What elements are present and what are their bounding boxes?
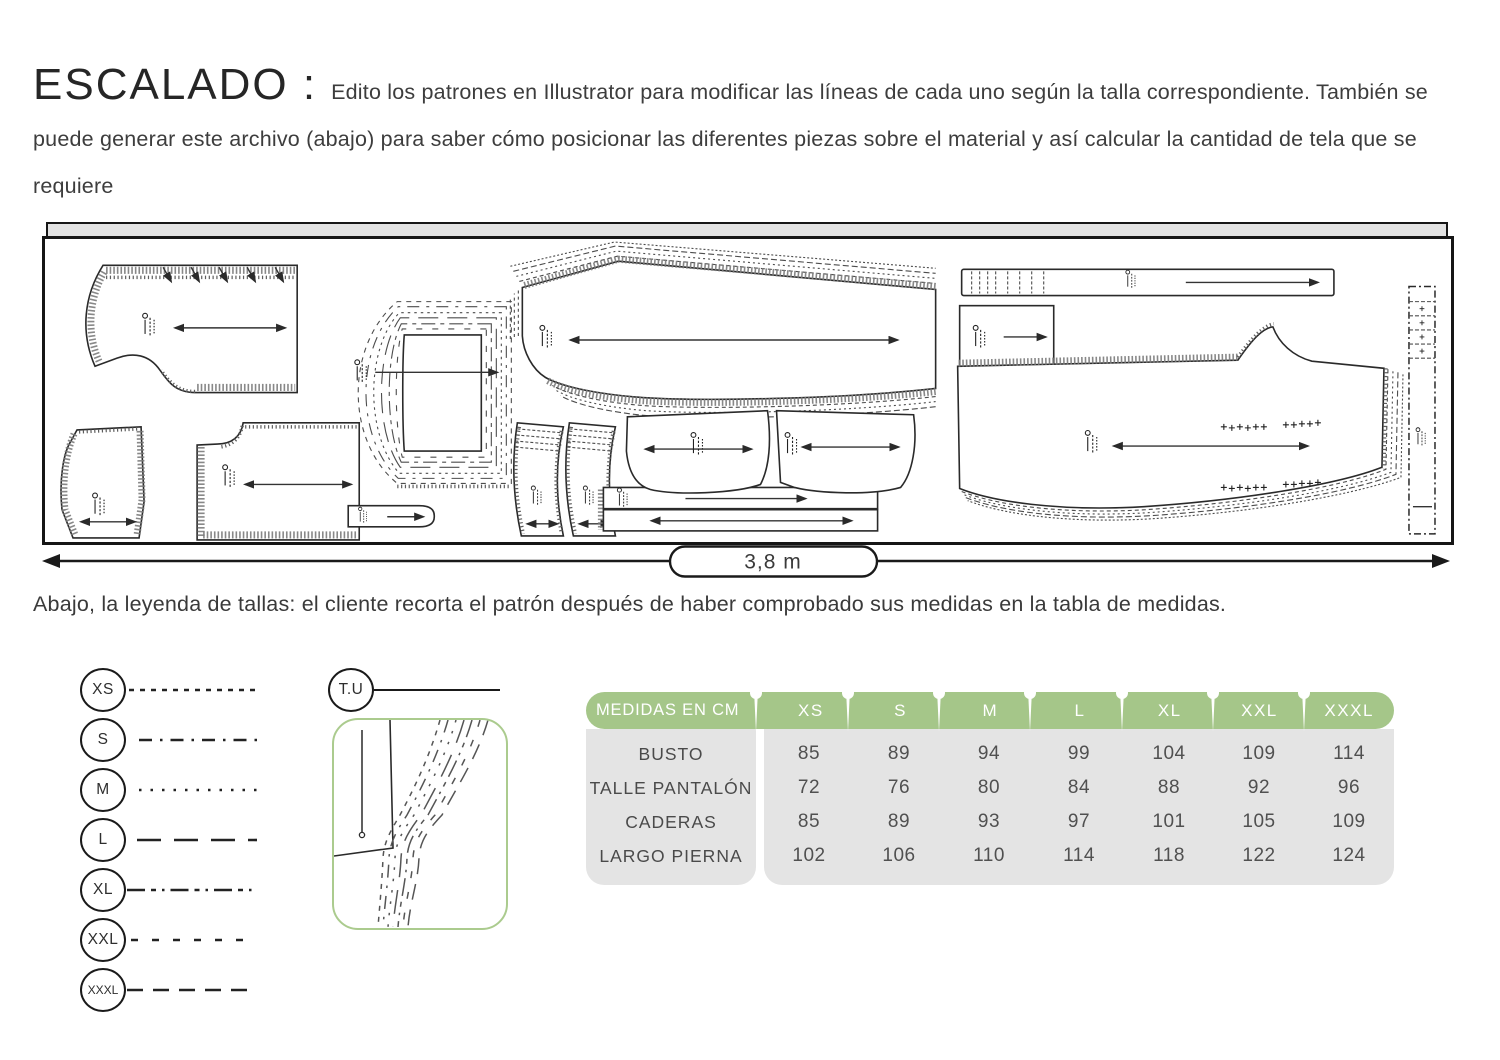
table-cell: 85 xyxy=(764,737,854,771)
dash-sample xyxy=(127,836,259,844)
measurements-table: MEDIDAS EN CM XS S M L XL XXL XXXL BUSTO… xyxy=(586,692,1394,885)
pin-icon xyxy=(1206,686,1220,734)
size-badge: M xyxy=(80,768,126,812)
dash-sample xyxy=(127,686,259,694)
pattern-piece-bodice-front xyxy=(86,265,297,392)
column-header-l: L xyxy=(1035,701,1125,721)
pattern-piece-pocket-1 xyxy=(626,411,769,493)
legend-row-xxl: XXL xyxy=(80,918,259,962)
arrow-left-icon xyxy=(42,554,60,568)
table-cell: 85 xyxy=(764,805,854,839)
table-cell: 101 xyxy=(1124,805,1214,839)
table-cell: 97 xyxy=(1034,805,1124,839)
table-cell: 118 xyxy=(1124,839,1214,873)
row-label: TALLE PANTALÓN xyxy=(586,771,756,805)
measure-value: 3,8 m xyxy=(744,551,802,574)
table-cell: 89 xyxy=(854,805,944,839)
table-cell: 80 xyxy=(944,771,1034,805)
column-header-xxl: XXL xyxy=(1215,701,1305,721)
page-title: ESCALADO : xyxy=(33,60,317,109)
pin-icon xyxy=(1115,686,1129,734)
column-header-m: M xyxy=(945,701,1035,721)
dash-sample xyxy=(127,986,259,994)
table-cell: 88 xyxy=(1124,771,1214,805)
pattern-piece-waist-strip-1 xyxy=(514,423,564,536)
size-badge: XL xyxy=(80,868,126,912)
pattern-piece-pocket-2 xyxy=(777,411,915,493)
table-cell: 106 xyxy=(854,839,944,873)
table-cell: 124 xyxy=(1304,839,1394,873)
grading-detail-drawing xyxy=(334,720,505,927)
arrow-right-icon xyxy=(1432,554,1450,568)
pin-icon xyxy=(1023,686,1037,734)
value-grid: 85 89 94 99 104 109 114 72 76 80 84 88 9… xyxy=(764,729,1394,885)
row-label: LARGO PIERNA xyxy=(586,839,756,873)
legend-row-xs: XS xyxy=(80,668,259,712)
pattern-piece-waistband xyxy=(962,269,1334,295)
pattern-piece-side-panel xyxy=(61,427,144,538)
legend-row-m: M xyxy=(80,768,259,812)
pin-icon xyxy=(841,686,855,734)
size-badge: S xyxy=(80,718,126,762)
table-cell: 105 xyxy=(1214,805,1304,839)
table-cell: 122 xyxy=(1214,839,1304,873)
table-cell: 84 xyxy=(1034,771,1124,805)
size-legend: XS S M L XL XXL xyxy=(80,668,259,1012)
table-cell: 93 xyxy=(944,805,1034,839)
table-cell: 72 xyxy=(764,771,854,805)
row-label: BUSTO xyxy=(586,737,756,771)
table-cell: 104 xyxy=(1124,737,1214,771)
pin-icon xyxy=(932,686,946,734)
caption-text: Abajo, la leyenda de tallas: el cliente … xyxy=(33,592,1463,617)
size-badge: XS xyxy=(80,668,126,712)
pattern-marker-figure xyxy=(42,236,1454,545)
legend-row-xxxl: XXXL xyxy=(80,968,259,1012)
pattern-piece-tab xyxy=(348,506,434,527)
table-header-title: MEDIDAS EN CM xyxy=(586,701,766,720)
size-badge: XXXL xyxy=(80,968,126,1012)
pattern-marker-drawing xyxy=(45,239,1451,542)
width-measure: 3,8 m xyxy=(42,545,1450,579)
table-header: MEDIDAS EN CM XS S M L XL XXL XXXL xyxy=(586,692,1394,729)
pattern-piece-band-strips xyxy=(601,487,877,530)
table-cell: 89 xyxy=(854,737,944,771)
dash-sample xyxy=(127,786,259,794)
table-cell: 114 xyxy=(1304,737,1394,771)
table-cell: 94 xyxy=(944,737,1034,771)
legend-row-s: S xyxy=(80,718,259,762)
dash-sample xyxy=(127,736,259,744)
table-cell: 76 xyxy=(854,771,944,805)
table-cell: 96 xyxy=(1304,771,1394,805)
size-badge: XXL xyxy=(80,918,126,962)
portfolio-page: ESCALADO :Edito los patrones en Illustra… xyxy=(0,0,1500,1060)
table-cell: 114 xyxy=(1034,839,1124,873)
table-cell: 99 xyxy=(1034,737,1124,771)
column-header-xxxl: XXXL xyxy=(1304,701,1394,721)
dash-sample xyxy=(127,936,259,944)
tu-badge: T.U xyxy=(328,668,374,712)
pattern-piece-graded-yoke xyxy=(355,302,512,487)
intro-block: ESCALADO :Edito los patrones en Illustra… xyxy=(33,62,1471,211)
legend-row-xl: XL xyxy=(80,868,259,912)
pattern-piece-back-panel xyxy=(197,423,359,540)
legend-row-l: L xyxy=(80,818,259,862)
tu-group: T.U xyxy=(328,668,500,712)
table-cell: 92 xyxy=(1214,771,1304,805)
table-cell: 110 xyxy=(944,839,1034,873)
table-cell: 102 xyxy=(764,839,854,873)
dash-sample xyxy=(127,886,259,894)
pin-icon xyxy=(749,686,763,734)
table-body: BUSTO TALLE PANTALÓN CADERAS LARGO PIERN… xyxy=(586,729,1394,885)
row-label: CADERAS xyxy=(586,805,756,839)
grading-detail-box xyxy=(332,718,508,930)
pattern-piece-front-leg xyxy=(510,242,935,417)
row-label-column: BUSTO TALLE PANTALÓN CADERAS LARGO PIERN… xyxy=(586,729,756,885)
table-cell: 109 xyxy=(1214,737,1304,771)
tu-line xyxy=(374,689,500,691)
size-badge: L xyxy=(80,818,126,862)
table-cell: 109 xyxy=(1304,805,1394,839)
pattern-piece-narrow-strip xyxy=(1409,286,1435,533)
column-header-xl: XL xyxy=(1125,701,1215,721)
pin-icon xyxy=(1297,686,1311,734)
